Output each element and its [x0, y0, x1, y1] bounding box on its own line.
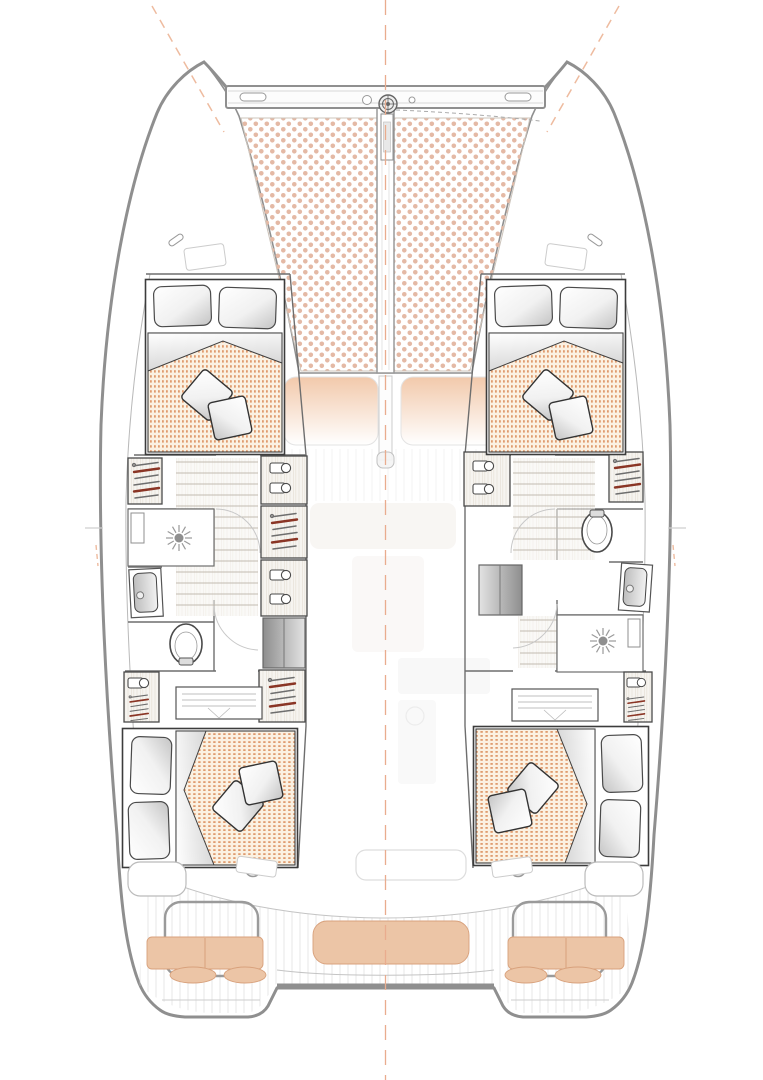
port-cabinet-inboard-1: [261, 456, 307, 504]
stbd-shower-shelf: [628, 619, 640, 647]
port-shower-shelf: [131, 513, 144, 543]
windlass-icon: [379, 95, 397, 113]
catamaran-floor-plan: [0, 0, 763, 1080]
stern-locker-port: [128, 862, 186, 896]
cabinet-knob-icon: [473, 461, 494, 471]
waterline-tick-port: [96, 545, 98, 566]
stbd-companionway-steps: [479, 565, 522, 615]
cabinet-knob-icon: [270, 483, 291, 493]
anchor-roller-slot: [384, 122, 391, 152]
crossbeam-fitting: [409, 97, 415, 103]
port-sink-icon: [129, 568, 163, 618]
stbd-aft-dresser: [512, 689, 598, 721]
crossbeam-slot-port: [240, 93, 266, 101]
bed-forward-starboard: [487, 280, 626, 455]
port-wardrobe-inboard: [261, 506, 307, 558]
stbd-cabinet-aft-outboard: [624, 672, 652, 722]
saloon-table-faint: [352, 556, 424, 652]
port-aft-dresser: [176, 687, 262, 719]
saloon-sofa-faint: [310, 503, 456, 549]
port-cabinet-aft-outboard: [124, 672, 159, 722]
bed-aft-port: [123, 729, 298, 868]
bed-aft-starboard: [474, 727, 649, 866]
cockpit-table: [356, 850, 466, 880]
port-wardrobe-aft-inboard: [259, 670, 305, 722]
crossbeam-slot-starboard: [505, 93, 531, 101]
stern-bench: [313, 921, 469, 964]
waterline-tick-starboard: [673, 545, 675, 566]
cabinet-knob-icon: [270, 570, 291, 580]
forward-cockpit-seat-starboard: [401, 377, 498, 445]
footrest-cushion: [555, 967, 601, 983]
cabinet-knob-icon: [473, 484, 494, 494]
cabinet-knob-icon: [128, 678, 149, 688]
crossbeam-fitting: [363, 96, 372, 105]
floor-plan-canvas: [0, 0, 763, 1080]
footrest-cushion: [505, 967, 547, 983]
stbd-sink-icon: [618, 563, 652, 612]
cabinet-knob-icon: [270, 463, 291, 473]
footrest-cushion: [224, 967, 266, 983]
port-cabinet-inboard-2: [261, 560, 307, 616]
cabinet-knob-icon: [627, 678, 646, 687]
galley-counter-faint-2: [398, 700, 436, 784]
bed-forward-port: [146, 280, 285, 455]
galley-counter-faint: [398, 658, 490, 694]
port-wardrobe-fwd-outboard: [128, 458, 162, 504]
stbd-wardrobe-fwd-outboard: [609, 452, 643, 502]
stern-locker-starboard: [585, 862, 643, 896]
cabinet-knob-icon: [270, 594, 291, 604]
stbd-cabinet-inboard: [464, 452, 510, 506]
footrest-cushion: [170, 967, 216, 983]
forward-cockpit-seat-port: [284, 377, 378, 445]
port-toilet-icon: [170, 624, 202, 665]
port-companionway-steps: [263, 618, 305, 668]
